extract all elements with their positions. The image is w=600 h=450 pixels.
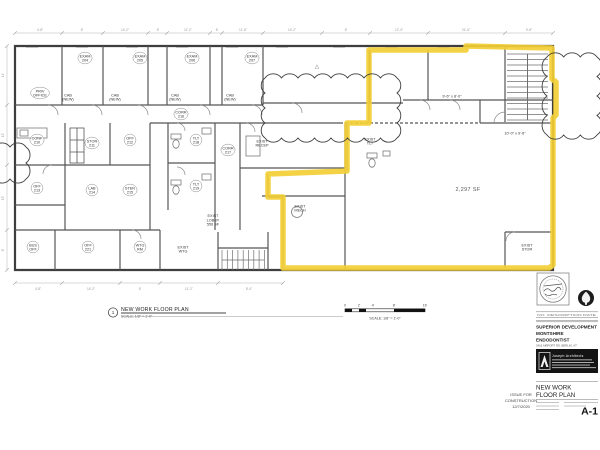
room-label: (NEW) xyxy=(62,97,74,101)
new-work-highlight-outline xyxy=(268,46,556,268)
room-label: 205 xyxy=(137,58,143,62)
dim-label: 11'-2" xyxy=(184,28,192,32)
sheet-title-line2: FLOOR PLAN xyxy=(536,392,575,399)
room-label: 206 xyxy=(189,58,195,62)
scale-tick-label: 8' xyxy=(393,304,396,308)
area-label: 2,297 SF xyxy=(455,187,480,193)
room-label: 219 xyxy=(193,186,199,190)
dim-label: 8' xyxy=(157,28,160,32)
room-label: 214 xyxy=(89,190,95,194)
triangle-marker: △ xyxy=(315,64,320,70)
stair-treads xyxy=(222,54,548,270)
dim-label: 14'-2" xyxy=(121,28,129,32)
dimension-labels: 4'-8"8'14'-2"8'11'-2"8'11'-6"14'-2"8'12'… xyxy=(1,28,532,291)
scale-tick-label: 16' xyxy=(423,304,428,308)
room-label: OFFICE xyxy=(33,93,47,97)
dim-label: 9'-8" xyxy=(526,28,532,32)
leaf-logo-icon xyxy=(578,290,594,306)
dim-label: 21'-6" xyxy=(462,28,470,32)
room-label: 217 xyxy=(225,150,231,154)
project-address: 2416 AIRPORT RD, BERLIN, VT xyxy=(536,344,577,348)
architect-seal xyxy=(537,273,569,305)
dim-label: 12'-4" xyxy=(395,28,403,32)
dim-label: 11'-6" xyxy=(239,28,247,32)
room-label: 221 xyxy=(85,247,91,251)
room-label: 212 xyxy=(127,140,133,144)
room-label: 218 xyxy=(193,140,199,144)
room-label: WTG xyxy=(179,249,188,253)
scale-tick-label: 2' xyxy=(358,304,361,308)
revision-header: NO. DESCRIPTION DATE xyxy=(537,313,596,317)
room-label: 207 xyxy=(249,58,255,62)
architect-logo-block: Joseph Architects xyxy=(536,349,598,373)
dim-label: 8' xyxy=(345,28,348,32)
dim-label: 12' xyxy=(1,133,5,138)
sheet-number: A-1 xyxy=(581,406,598,418)
room-label: 204 xyxy=(82,58,88,62)
title-block: NO. DESCRIPTION DATE SUPERIOR DEVELOPMEN… xyxy=(536,273,598,418)
room-label: 211 xyxy=(89,143,95,147)
architect-name: Joseph Architects xyxy=(552,354,584,358)
floor-plan-drawing: PRIVOFFICEEXAM204EXAM205EXAM206EXAM207CA… xyxy=(0,0,600,450)
dim-label: 4'-8" xyxy=(35,287,41,291)
room-label: 213 xyxy=(34,188,40,192)
room-label: 215 xyxy=(127,190,133,194)
room-label: 556 SF xyxy=(207,222,220,226)
scale-tick-label: 4' xyxy=(372,304,375,308)
room-label: (NEW) xyxy=(169,97,181,101)
dim-label: 13' xyxy=(1,196,5,201)
door-swings xyxy=(43,100,515,241)
room-label: OFF xyxy=(29,247,37,251)
room-label: RM xyxy=(137,247,143,251)
dim-label: 14' xyxy=(1,73,5,78)
drawing-sheet: PRIVOFFICEEXAM204EXAM205EXAM206EXAM207CA… xyxy=(0,0,600,450)
issue-note: ISSUE FOR CONSTRUCTION 12/7/2020 xyxy=(505,392,537,409)
dim-label: 11'-2" xyxy=(185,287,193,291)
issue-line2: CONSTRUCTION xyxy=(505,398,537,403)
dim-label: 14'-2" xyxy=(288,28,296,32)
dim-label: 8' xyxy=(216,28,219,32)
revision-clouds xyxy=(0,53,600,183)
sheet-title-line1: NEW WORK xyxy=(536,385,572,392)
issue-line1: ISSUE FOR xyxy=(510,392,532,397)
room-label: 9'-6" x 8'-0" xyxy=(442,94,462,98)
drawing-title-callout: 1 NEW WORK FLOOR PLAN SCALE: 1/8" = 1'-0… xyxy=(108,307,343,319)
dim-label: 8'-4" xyxy=(246,287,252,291)
room-label: RECEP xyxy=(255,143,269,147)
callout-number: 1 xyxy=(112,310,115,315)
room-label: 216 xyxy=(178,114,184,118)
room-label: (NEW) xyxy=(109,97,121,101)
scale-tick-label: 0 xyxy=(344,304,346,308)
dim-label: 8' xyxy=(1,248,5,251)
dim-label: 8' xyxy=(139,287,142,291)
room-label: 210 xyxy=(34,140,40,144)
dim-label: 8' xyxy=(81,28,84,32)
scale-bar-label: SCALE: 1/8" = 1'-0" xyxy=(369,317,401,321)
room-label: MECH xyxy=(294,208,305,212)
room-label: TLT xyxy=(367,141,374,145)
drawing-title: NEW WORK FLOOR PLAN xyxy=(121,307,189,313)
project-name-line3: ENDODONTIST xyxy=(536,338,570,343)
room-label: STOR xyxy=(522,247,533,251)
dim-label: 4'-8" xyxy=(37,28,43,32)
issue-date: 12/7/2020 xyxy=(512,404,531,409)
graphic-scale-bar: SCALE: 1/8" = 1'-0" xyxy=(345,309,425,321)
project-name-line1: SUPERIOR DEVELOPMENT xyxy=(536,325,597,330)
room-label: (NEW) xyxy=(224,97,236,101)
project-name-line2: MONTSHIRE xyxy=(536,331,564,336)
dim-label: 14'-2" xyxy=(87,287,95,291)
room-label: 10'-0" x 9'-6" xyxy=(504,131,526,135)
